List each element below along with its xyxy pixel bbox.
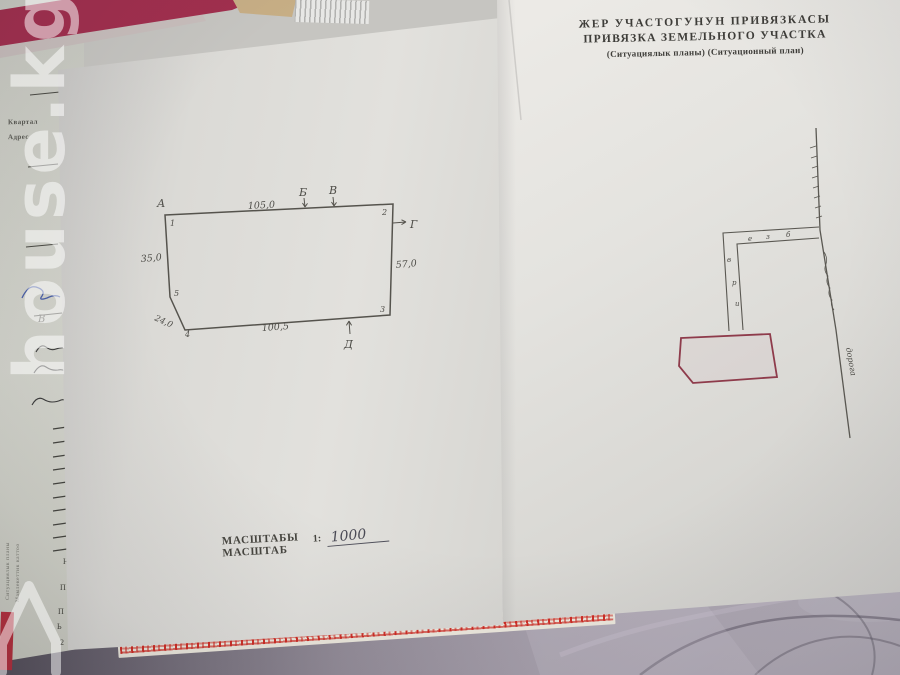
signature-mark	[32, 398, 66, 405]
road-annotation-squiggles	[824, 252, 834, 310]
dim-right: 57,0	[395, 258, 417, 271]
dim-top: 105,0	[248, 200, 276, 212]
path-mark: б	[786, 231, 791, 239]
corner-5: 5	[174, 289, 179, 298]
signature-mark	[34, 366, 65, 373]
fabric-fold-line	[755, 637, 900, 675]
corner-4: 4	[184, 330, 190, 339]
point-label-a: А	[156, 197, 165, 210]
plot-outline-red	[679, 334, 777, 383]
signature-mark	[36, 346, 65, 352]
header-line-subtitle: (Ситуациялык планы) (Ситуационный план)	[545, 44, 865, 61]
point-label-b: Б	[298, 186, 307, 199]
situation-plan-header: ЖЕР УЧАСТОГУНУН ПРИВЯЗКАСЫ ПРИВЯЗКА ЗЕМЕ…	[545, 13, 866, 61]
page-crease	[509, 0, 521, 120]
dim-left: 35,0	[140, 252, 162, 265]
corner-3: 3	[380, 305, 385, 314]
road-label: дорога	[844, 347, 858, 377]
corner-1: 1	[170, 219, 175, 228]
situation-plan-page: ЖЕР УЧАСТОГУНУН ПРИВЯЗКАСЫ ПРИВЯЗКА ЗЕМЕ…	[488, 0, 900, 660]
plot-plan-page: А Б В Г Д 1 2 3 4 5 105,0 35,0 57,0 100,…	[50, 10, 508, 658]
striped-notepad-edge	[295, 0, 370, 24]
arrow-g	[393, 220, 406, 225]
handwritten-letter: В	[37, 314, 45, 325]
path-mark: в	[727, 256, 731, 264]
dim-diagonal: 24,0	[152, 313, 175, 330]
arrow-b	[303, 198, 308, 207]
scale-prefix: 1:	[313, 533, 322, 544]
point-label-d: Д	[343, 338, 354, 351]
point-label-v: В	[328, 184, 337, 197]
blue-handwriting	[22, 287, 60, 299]
header-line-russian: ПРИВЯЗКА ЗЕМЕЛЬНОГО УЧАСТКА	[545, 28, 865, 47]
road-line	[816, 128, 850, 438]
path-mark: е	[748, 235, 752, 243]
point-label-g: Г	[409, 218, 418, 231]
house-outline	[2, 586, 56, 672]
house-icon	[0, 572, 68, 675]
access-path	[723, 227, 819, 331]
path-mark: и	[735, 300, 740, 308]
plot-boundary	[165, 204, 393, 330]
path-mark: з	[766, 233, 770, 241]
scale-title-ru: МАСШТАБ	[222, 543, 300, 559]
scale-block: МАСШТАБЫ МАСШТАБ 1: 1000	[221, 527, 389, 560]
arrow-d	[346, 321, 351, 334]
photo-of-land-documents: Квартал Адрес В Ситуациялык планы Мамлек…	[0, 0, 900, 675]
path-mark: р	[732, 279, 737, 287]
form-lines	[26, 92, 62, 316]
corner-2: 2	[381, 208, 387, 217]
dim-bottom: 100,5	[261, 321, 289, 334]
arrow-v	[332, 197, 337, 206]
scale-value-handwritten: 1000	[326, 525, 389, 547]
road-annotation-squiggles	[810, 146, 822, 218]
